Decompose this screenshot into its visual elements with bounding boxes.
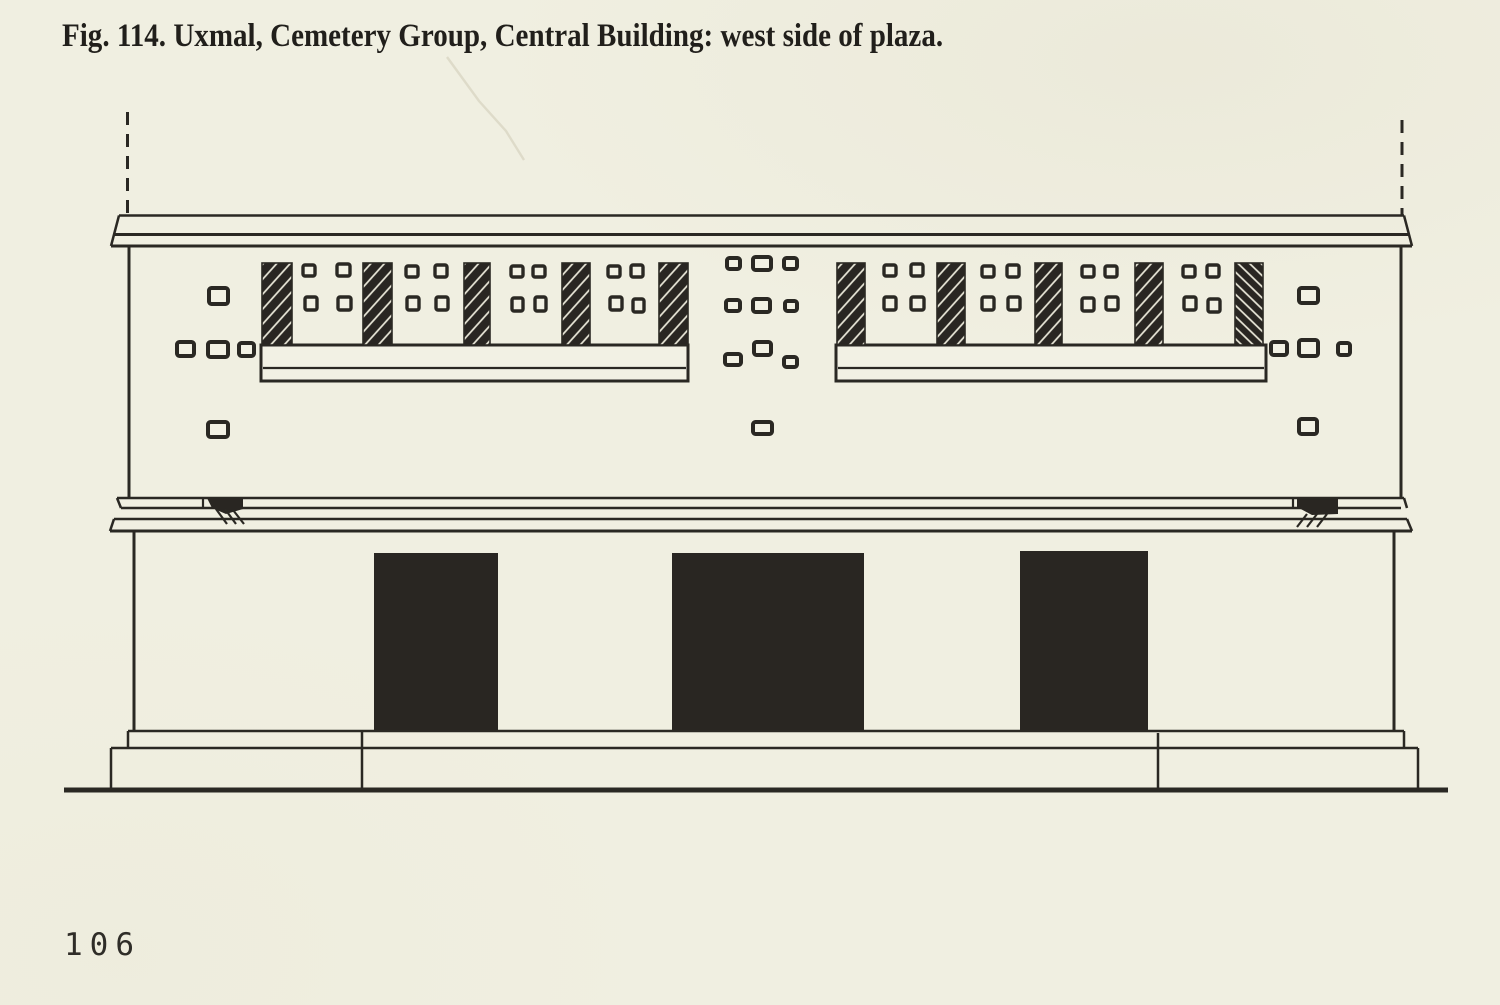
projection-guides <box>128 112 1403 216</box>
fallen-stone <box>727 258 740 269</box>
cornice-right-bevel <box>1404 216 1412 247</box>
paper-crease <box>447 57 524 160</box>
lattice-stone <box>535 297 546 311</box>
lattice-bar <box>659 263 688 345</box>
lattice-stone <box>633 299 644 312</box>
lattice-bar <box>562 263 590 345</box>
cornice-left-bevel <box>111 216 119 247</box>
lattice-stone <box>631 265 643 277</box>
fallen-stone <box>754 342 771 355</box>
upper-cornice <box>111 216 1412 247</box>
fallen-stone <box>1271 342 1287 355</box>
lattice-stone <box>1184 297 1196 310</box>
lattice-stone <box>982 266 994 277</box>
fallen-stone <box>753 299 770 312</box>
fallen-stone <box>784 258 797 269</box>
molding-left-bevel-2 <box>110 519 114 531</box>
lattice-stone <box>338 297 351 310</box>
lattice-stone <box>1105 266 1117 277</box>
fallen-stone <box>726 300 740 311</box>
medial-molding <box>110 498 1412 531</box>
molding-right-bevel-2 <box>1407 519 1412 531</box>
figure-drawing <box>0 0 1500 1005</box>
lattice-bar <box>1035 263 1062 345</box>
fallen-stone <box>1338 343 1350 355</box>
fallen-stone <box>208 342 228 357</box>
molding-damage-right <box>1297 499 1338 527</box>
lattice-bar <box>1235 263 1263 345</box>
lattice-bar <box>464 263 490 345</box>
fallen-stone <box>177 342 194 356</box>
lattice-stone <box>1007 265 1019 277</box>
lattice-stone <box>511 266 523 277</box>
molding-left-bevel-1 <box>117 498 121 508</box>
page-number: 106 <box>64 930 141 961</box>
lattice-stone <box>337 264 350 276</box>
fallen-stone <box>753 422 772 434</box>
lattice-shelf <box>836 345 1266 381</box>
doorways <box>374 551 1148 731</box>
doorway <box>374 553 498 731</box>
lattice-stone <box>435 265 447 277</box>
lattice-stone <box>1008 297 1020 310</box>
lattice-stone <box>608 266 620 277</box>
doorway <box>1020 551 1148 731</box>
lattice-stone <box>406 266 418 277</box>
lattice-stone <box>1208 299 1220 312</box>
lattice-stone <box>436 297 448 310</box>
fallen-stone <box>1299 340 1318 356</box>
lattice-stone <box>305 297 317 310</box>
lattice-stone <box>512 298 523 311</box>
lattice-stone <box>911 297 924 310</box>
lattice-bar <box>937 263 965 345</box>
fallen-stone <box>239 343 254 356</box>
fallen-stone <box>753 257 771 270</box>
lattice-bar <box>262 263 292 345</box>
lattice-stone <box>1082 298 1094 311</box>
fallen-stone <box>1299 288 1318 303</box>
lattice-stone <box>884 265 896 276</box>
fallen-stone <box>785 301 797 311</box>
scanned-book-page: Fig. 114. Uxmal, Cemetery Group, Central… <box>0 0 1500 1005</box>
lattice-stone <box>1106 297 1118 310</box>
lattice-stone <box>1183 266 1195 277</box>
lattice-stone <box>1082 266 1094 277</box>
lattice-stone <box>911 264 923 276</box>
fallen-stone <box>208 422 228 437</box>
fallen-stone <box>1299 419 1317 434</box>
platform-base <box>111 731 1418 788</box>
lattice-stone <box>884 297 896 310</box>
fallen-stone <box>784 357 797 367</box>
doorway <box>672 553 864 731</box>
lattice-shelf <box>261 345 688 381</box>
fallen-stone <box>725 354 741 365</box>
molding-right-bevel-1 <box>1404 498 1407 508</box>
lattice-stone <box>407 297 419 310</box>
lattice-bar <box>1135 263 1163 345</box>
lattice-stone <box>533 266 545 277</box>
lattice-stone <box>1207 265 1219 277</box>
lattice-stone <box>982 297 994 310</box>
lattice-stone <box>610 297 622 310</box>
fallen-stone <box>209 288 228 304</box>
lattice-bar <box>837 263 865 345</box>
lattice-bar <box>363 263 392 345</box>
lattice-stone <box>303 265 315 276</box>
